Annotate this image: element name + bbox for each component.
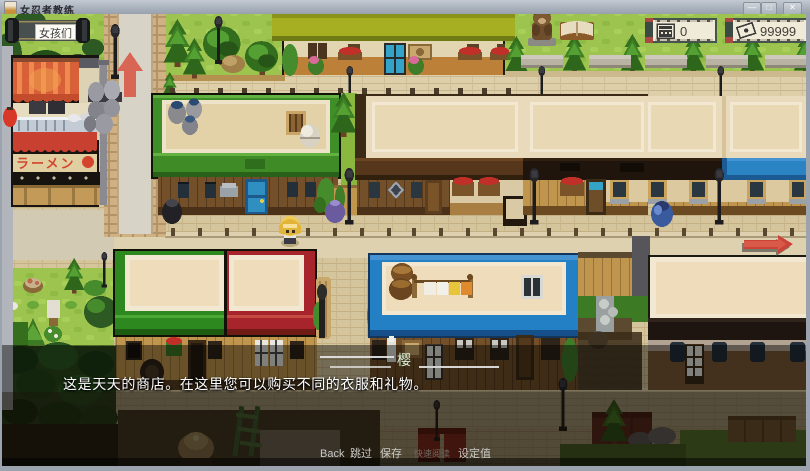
svg-text:女孩们: 女孩们 [39, 26, 72, 40]
svg-text:快速阅读: 快速阅读 [414, 448, 450, 459]
svg-text:0: 0 [680, 24, 687, 39]
svg-text:99999: 99999 [760, 24, 796, 39]
svg-text:设定值: 设定值 [458, 446, 491, 460]
svg-text:这是天天的商店。在这里您可以购买不同的衣服和礼物。: 这是天天的商店。在这里您可以购买不同的衣服和礼物。 [63, 376, 428, 392]
svg-text:Back: Back [320, 448, 345, 460]
svg-text:樱: 樱 [397, 352, 411, 368]
svg-text:跳过: 跳过 [350, 446, 372, 460]
svg-text:保存: 保存 [380, 446, 402, 460]
svg-text:ラーメン: ラーメン [16, 156, 75, 171]
